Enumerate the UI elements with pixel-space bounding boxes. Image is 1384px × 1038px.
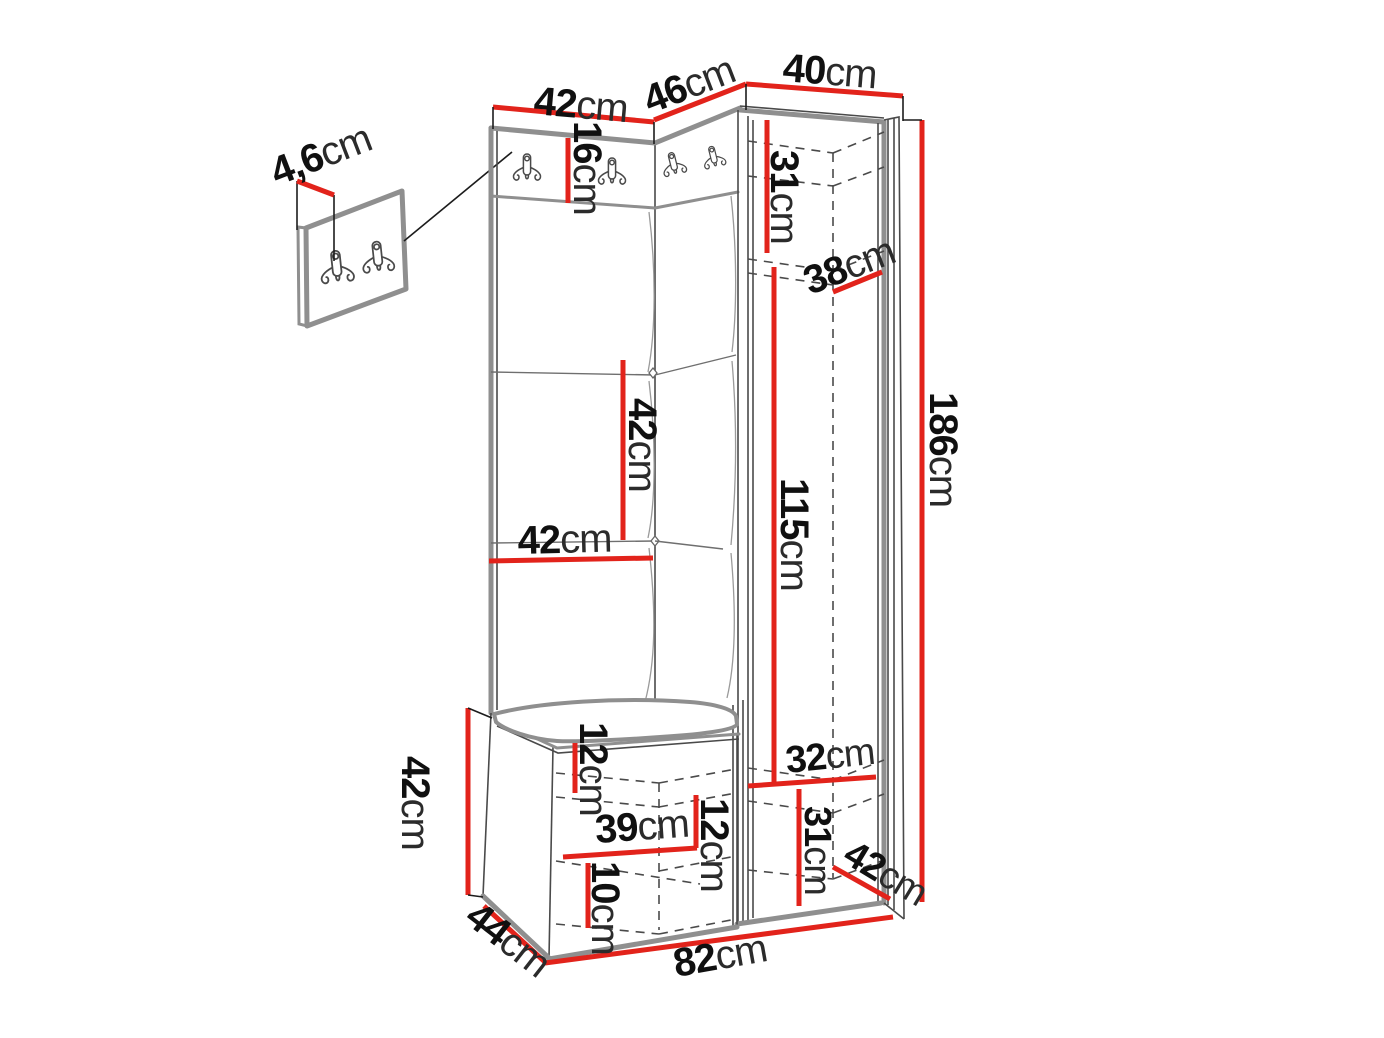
diagram-canvas: 4,6cm 42cm 46cm 40cm 16cm 31cm 38cm 186c… (0, 0, 1384, 1038)
coat-hook-icon (700, 144, 726, 169)
dim-label-panel-tile-height: 42cm (620, 398, 664, 492)
coat-hook-icon (513, 154, 540, 180)
furniture-dimension-drawing: 4,6cm 42cm 46cm 40cm 16cm 31cm 38cm 186c… (0, 0, 1384, 1038)
dim-label-bench-bottom-offset: 10cm (583, 861, 627, 955)
dimension-labels: 4,6cm 42cm 46cm 40cm 16cm 31cm 38cm 186c… (264, 46, 965, 986)
coat-hook-icon (361, 240, 395, 273)
coat-hook-icon (319, 249, 355, 283)
dim-label-bench-mid-offset: 12cm (692, 798, 736, 892)
coat-hook-icon (660, 150, 688, 177)
dim-label-hook-panel-height: 16cm (565, 121, 609, 215)
dim-label-total-height: 186cm (921, 392, 965, 507)
upholstered-panel-corner (655, 108, 740, 698)
dim-label-panel-tile-width: 42cm (517, 517, 612, 563)
open-wardrobe (733, 106, 904, 926)
dim-label-top-width-right: 40cm (781, 46, 878, 97)
dim-label-bottom-shelf-width: 32cm (784, 731, 877, 782)
dim-label-bottom-section-height: 31cm (796, 806, 838, 895)
dim-label-bench-board-offset: 12cm (571, 722, 615, 816)
dim-label-top-width-corner: 46cm (637, 48, 740, 123)
dim-label-bench-shelf-width: 39cm (594, 802, 691, 852)
dim-label-detail-thickness: 4,6cm (264, 116, 377, 194)
detail-hook-panel (297, 152, 512, 326)
dim-label-wardrobe-top-shelf: 31cm (762, 150, 806, 244)
dim-label-bench-height: 42cm (393, 756, 437, 850)
dim-label-hanging-space: 115cm (772, 478, 816, 591)
dim-label-bench-depth: 44cm (457, 893, 558, 985)
